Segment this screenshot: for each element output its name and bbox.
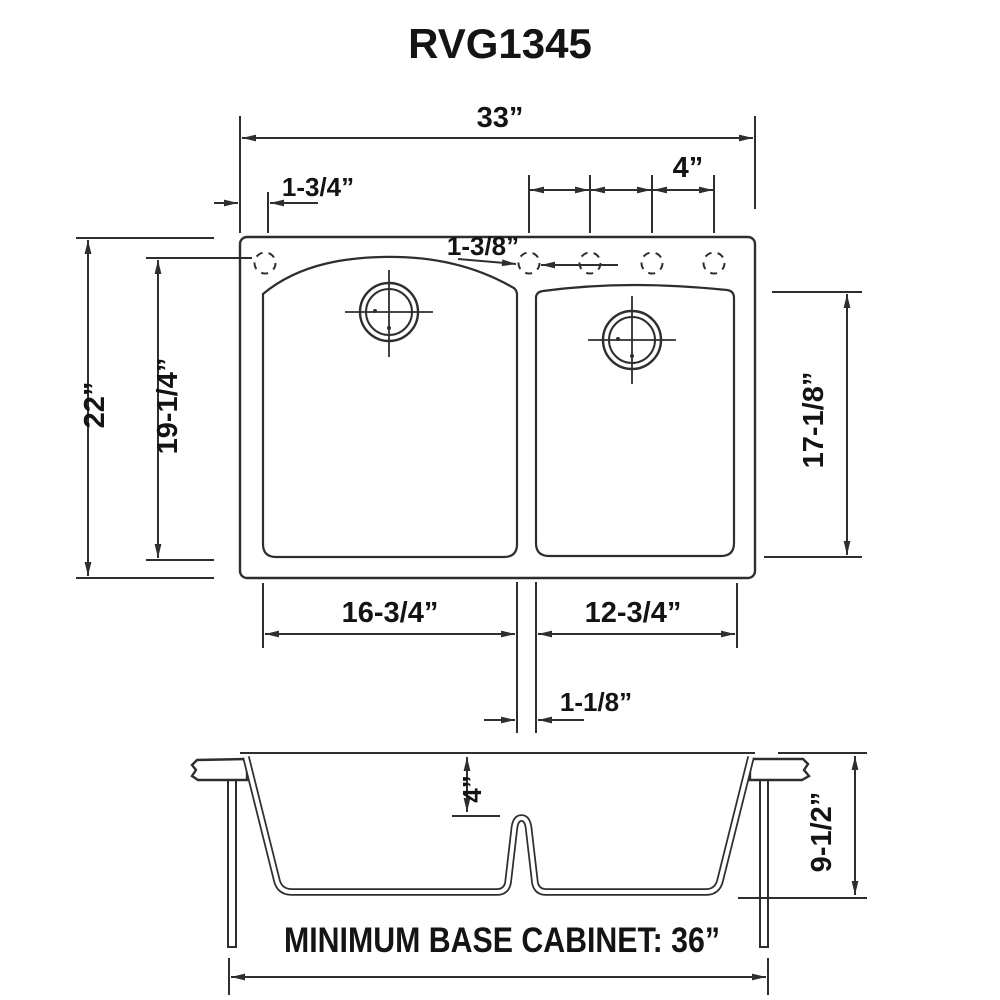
sink-cross-section [240,753,755,892]
dim-hole-spacing: 4” [529,152,714,233]
dim-left-bowl-depth: 19-1/4” [146,258,252,560]
dim-overall-depth: 22” [76,238,214,578]
dim-label-divider-width: 1-1/8” [560,687,632,717]
dim-base-cabinet: MINIMUM BASE CABINET: 36” [229,921,768,995]
diagram-canvas: RVG1345 [0,0,1000,1000]
dim-right-bowl-width: 12-3/4” [538,583,737,648]
dim-label-hole-offset: 1-3/4” [282,172,354,202]
dim-label-overall-depth: 22” [79,382,111,429]
dim-right-bowl-depth: 17-1/8” [764,292,862,557]
countertop-right [750,759,809,780]
dim-label-left-bowl-width: 16-3/4” [342,597,439,629]
dim-label-hole-diameter: 1-3/8” [447,231,519,261]
dim-left-bowl-width: 16-3/4” [263,583,515,648]
cabinet-side-left [228,779,236,947]
front-view: 4” 9-1/2” MINIMUM BASE CABINET: 36” [192,753,867,995]
dim-hole-offset: 1-3/4” [214,172,354,233]
top-view: 33” 4” 1-3/4” 1-3/8” [76,102,862,733]
countertop-left [192,759,247,780]
dim-label-divider-depth: 4” [457,775,487,802]
dim-label-bowl-depth: 9-1/2” [806,792,838,873]
dim-label-hole-spacing: 4” [673,152,704,184]
dim-label-right-bowl-width: 12-3/4” [585,597,682,629]
dim-label-right-bowl-depth: 17-1/8” [798,372,830,469]
cabinet-side-right [760,779,768,947]
page-title: RVG1345 [408,20,592,67]
left-bowl-outline [263,257,517,557]
sink-dimension-diagram: RVG1345 [0,0,1000,1000]
dim-label-overall-width: 33” [477,102,524,134]
base-cabinet-note: MINIMUM BASE CABINET: 36” [284,921,720,960]
dim-label-left-bowl-depth: 19-1/4” [152,358,184,455]
dim-divider-depth: 4” [452,757,500,816]
right-bowl-outline [536,285,734,556]
